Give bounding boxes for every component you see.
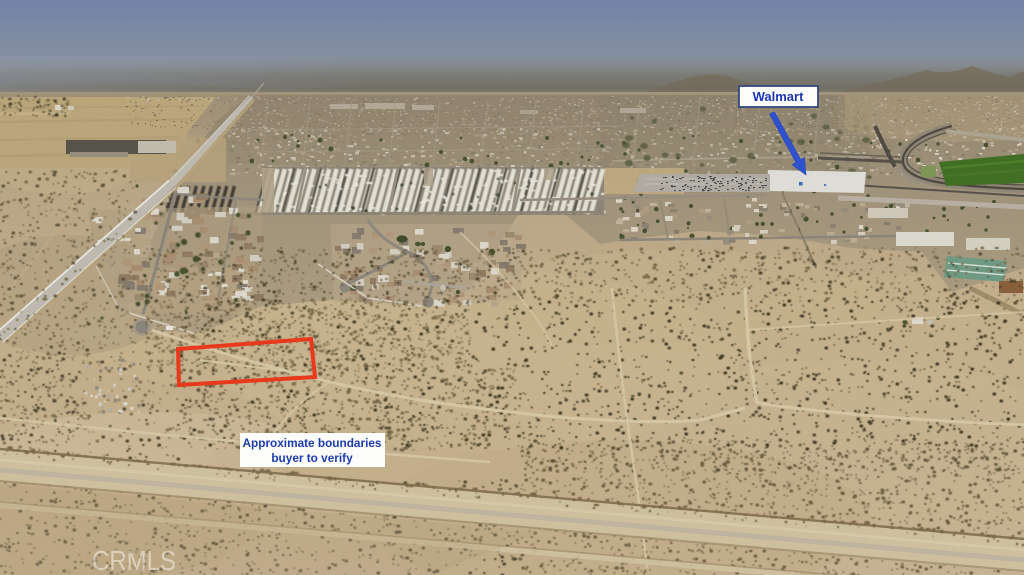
svg-text:CRMLS: CRMLS xyxy=(92,545,176,575)
svg-text:Walmart: Walmart xyxy=(753,89,804,104)
svg-text:Approximate boundaries: Approximate boundaries xyxy=(243,436,382,450)
svg-text:buyer to verify: buyer to verify xyxy=(271,451,353,465)
